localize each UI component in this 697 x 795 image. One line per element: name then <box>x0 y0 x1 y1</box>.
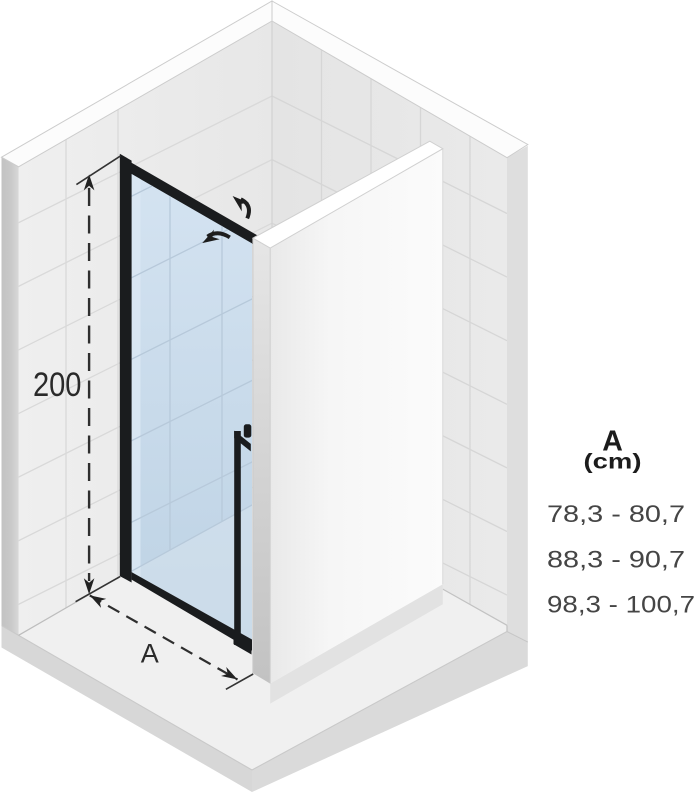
svg-text:200: 200 <box>33 366 82 404</box>
svg-text:98,3 - 100,7: 98,3 - 100,7 <box>547 591 695 618</box>
svg-text:78,3 - 80,7: 78,3 - 80,7 <box>547 501 685 528</box>
svg-text:A: A <box>141 639 159 669</box>
svg-text:88,3 - 90,7: 88,3 - 90,7 <box>547 547 685 574</box>
svg-text:(cm): (cm) <box>584 450 642 474</box>
